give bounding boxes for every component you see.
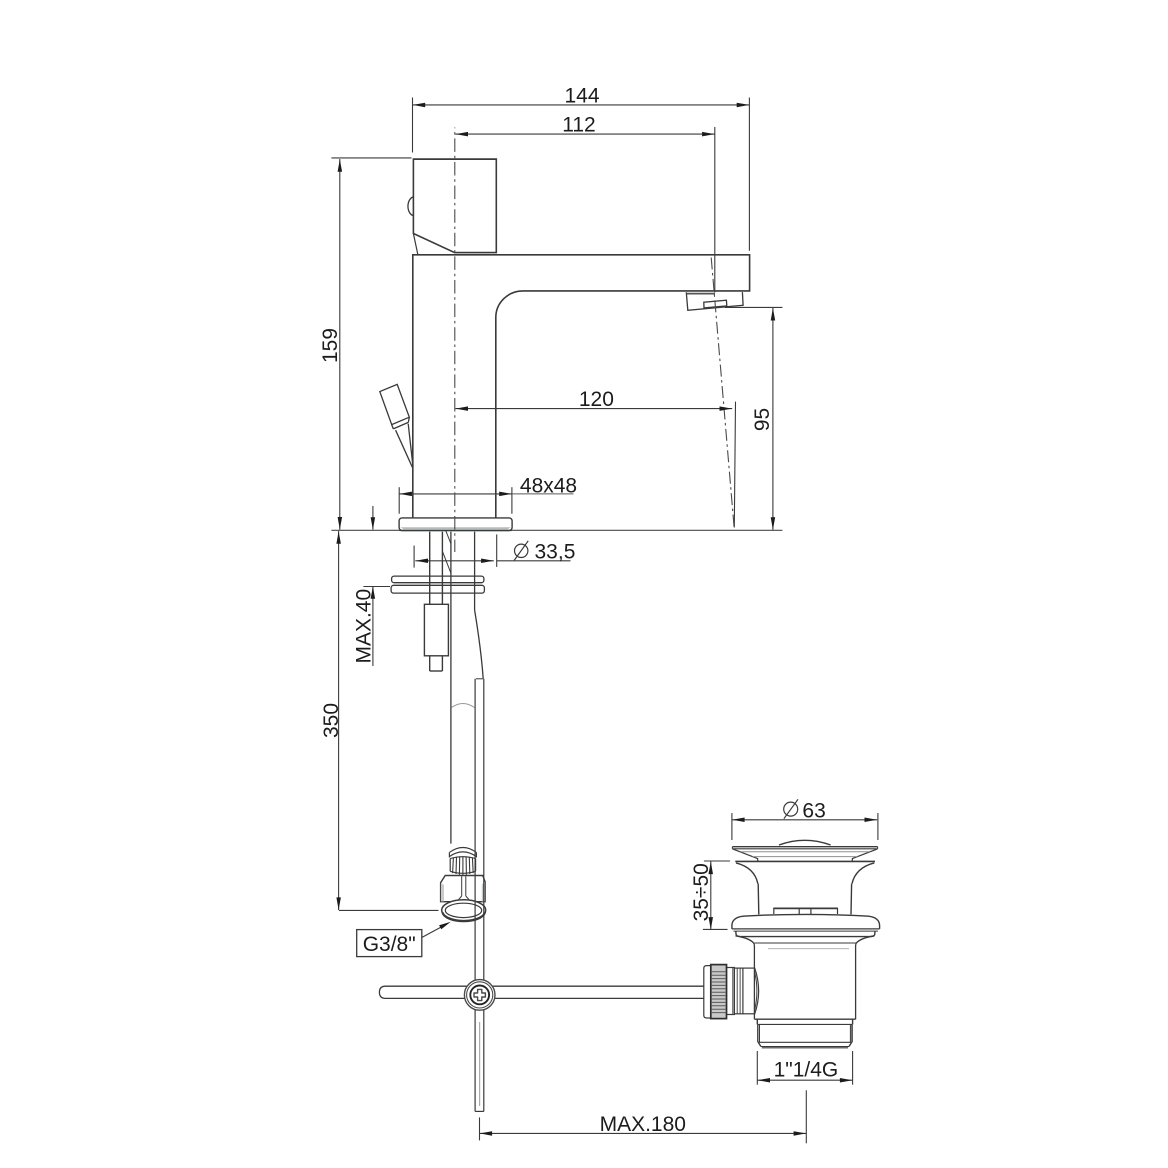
svg-text:63: 63	[802, 799, 825, 822]
svg-text:G3/8": G3/8"	[363, 933, 416, 956]
svg-text:35÷50: 35÷50	[690, 863, 713, 921]
svg-text:112: 112	[562, 113, 595, 136]
svg-text:120: 120	[579, 388, 614, 411]
svg-text:MAX.40: MAX.40	[353, 589, 376, 664]
svg-text:33,5: 33,5	[535, 541, 576, 564]
svg-text:MAX.180: MAX.180	[600, 1113, 686, 1136]
svg-text:1"1/4G: 1"1/4G	[774, 1058, 839, 1081]
svg-text:350: 350	[320, 703, 343, 738]
svg-text:95: 95	[751, 408, 774, 431]
svg-text:48x48: 48x48	[520, 474, 577, 497]
svg-text:144: 144	[564, 85, 599, 108]
svg-text:159: 159	[319, 328, 342, 363]
